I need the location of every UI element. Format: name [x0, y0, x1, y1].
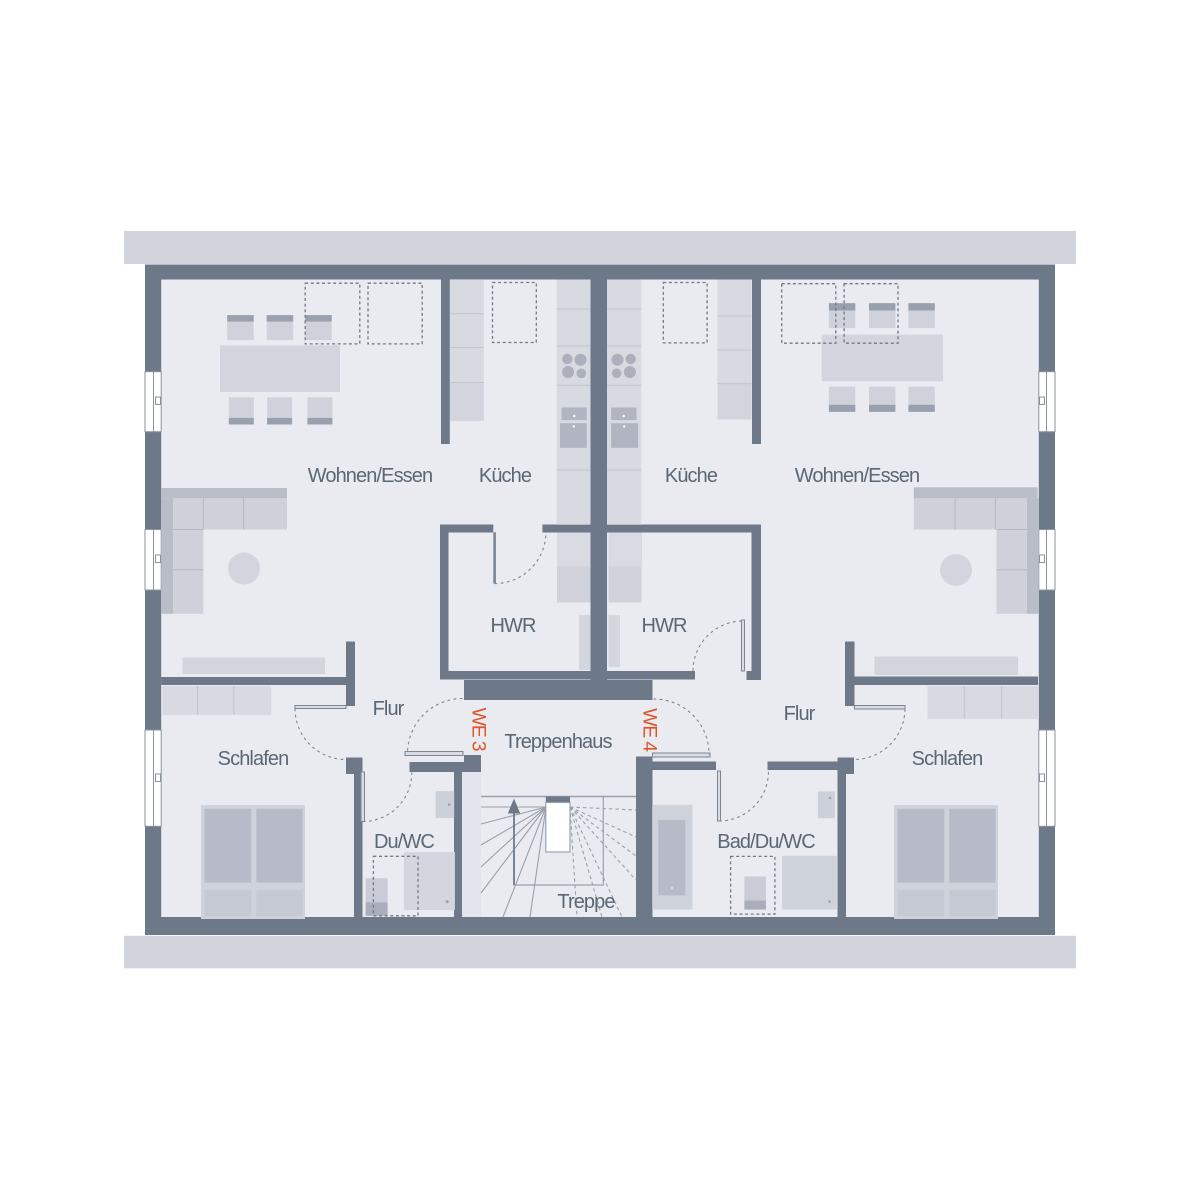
svg-text:Du/WC: Du/WC — [374, 831, 434, 853]
svg-text:Küche: Küche — [479, 465, 532, 487]
svg-text:Wohnen/Essen: Wohnen/Essen — [795, 465, 919, 487]
svg-text:Flur: Flur — [373, 698, 405, 720]
svg-text:Schlafen: Schlafen — [912, 748, 983, 770]
svg-text:Treppenhaus: Treppenhaus — [504, 731, 612, 753]
svg-text:Küche: Küche — [665, 465, 718, 487]
svg-text:HWR: HWR — [641, 615, 687, 637]
svg-text:WE 3: WE 3 — [468, 708, 490, 751]
svg-text:Wohnen/Essen: Wohnen/Essen — [308, 465, 432, 487]
svg-text:Bad/Du/WC: Bad/Du/WC — [717, 831, 815, 853]
svg-text:Schlafen: Schlafen — [218, 748, 289, 770]
svg-text:WE 4: WE 4 — [639, 708, 661, 752]
svg-text:Flur: Flur — [784, 703, 816, 725]
svg-text:Treppe: Treppe — [557, 891, 615, 913]
svg-text:HWR: HWR — [490, 615, 536, 637]
